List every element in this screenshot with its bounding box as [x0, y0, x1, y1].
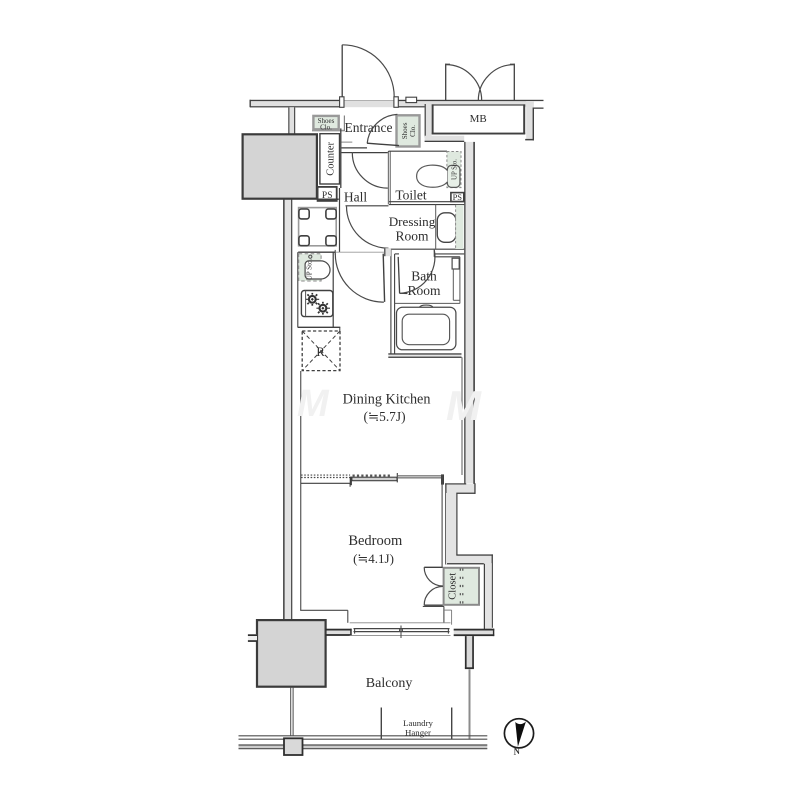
svg-text:M: M: [297, 383, 330, 425]
svg-text:Dressing: Dressing: [389, 214, 436, 229]
svg-text:Laundry: Laundry: [403, 718, 433, 728]
svg-text:PS: PS: [453, 192, 463, 202]
svg-text:Toilet: Toilet: [395, 187, 427, 202]
svg-text:Shoes: Shoes: [401, 122, 409, 139]
svg-text:M: M: [446, 382, 482, 429]
svg-text:(≒4.1J): (≒4.1J): [353, 551, 394, 566]
svg-text:(≒5.7J): (≒5.7J): [363, 409, 405, 424]
svg-text:Balcony: Balcony: [366, 676, 413, 691]
svg-text:Hall: Hall: [344, 190, 367, 205]
svg-text:UP Sto.: UP Sto.: [452, 159, 459, 180]
svg-text:Hanger: Hanger: [405, 727, 431, 737]
svg-text:MB: MB: [470, 113, 487, 125]
svg-text:Closet: Closet: [448, 573, 459, 600]
svg-text:UP Sto.: UP Sto.: [305, 258, 313, 280]
svg-text:Counter: Counter: [325, 141, 336, 175]
svg-text:Dining Kitchen: Dining Kitchen: [343, 392, 431, 408]
svg-text:Clo.: Clo.: [409, 125, 417, 137]
svg-text:Bath: Bath: [411, 269, 437, 284]
svg-text:Entrance: Entrance: [345, 120, 393, 135]
svg-text:Bedroom: Bedroom: [348, 533, 403, 549]
svg-text:R: R: [316, 345, 325, 359]
svg-text:Room: Room: [395, 229, 429, 244]
